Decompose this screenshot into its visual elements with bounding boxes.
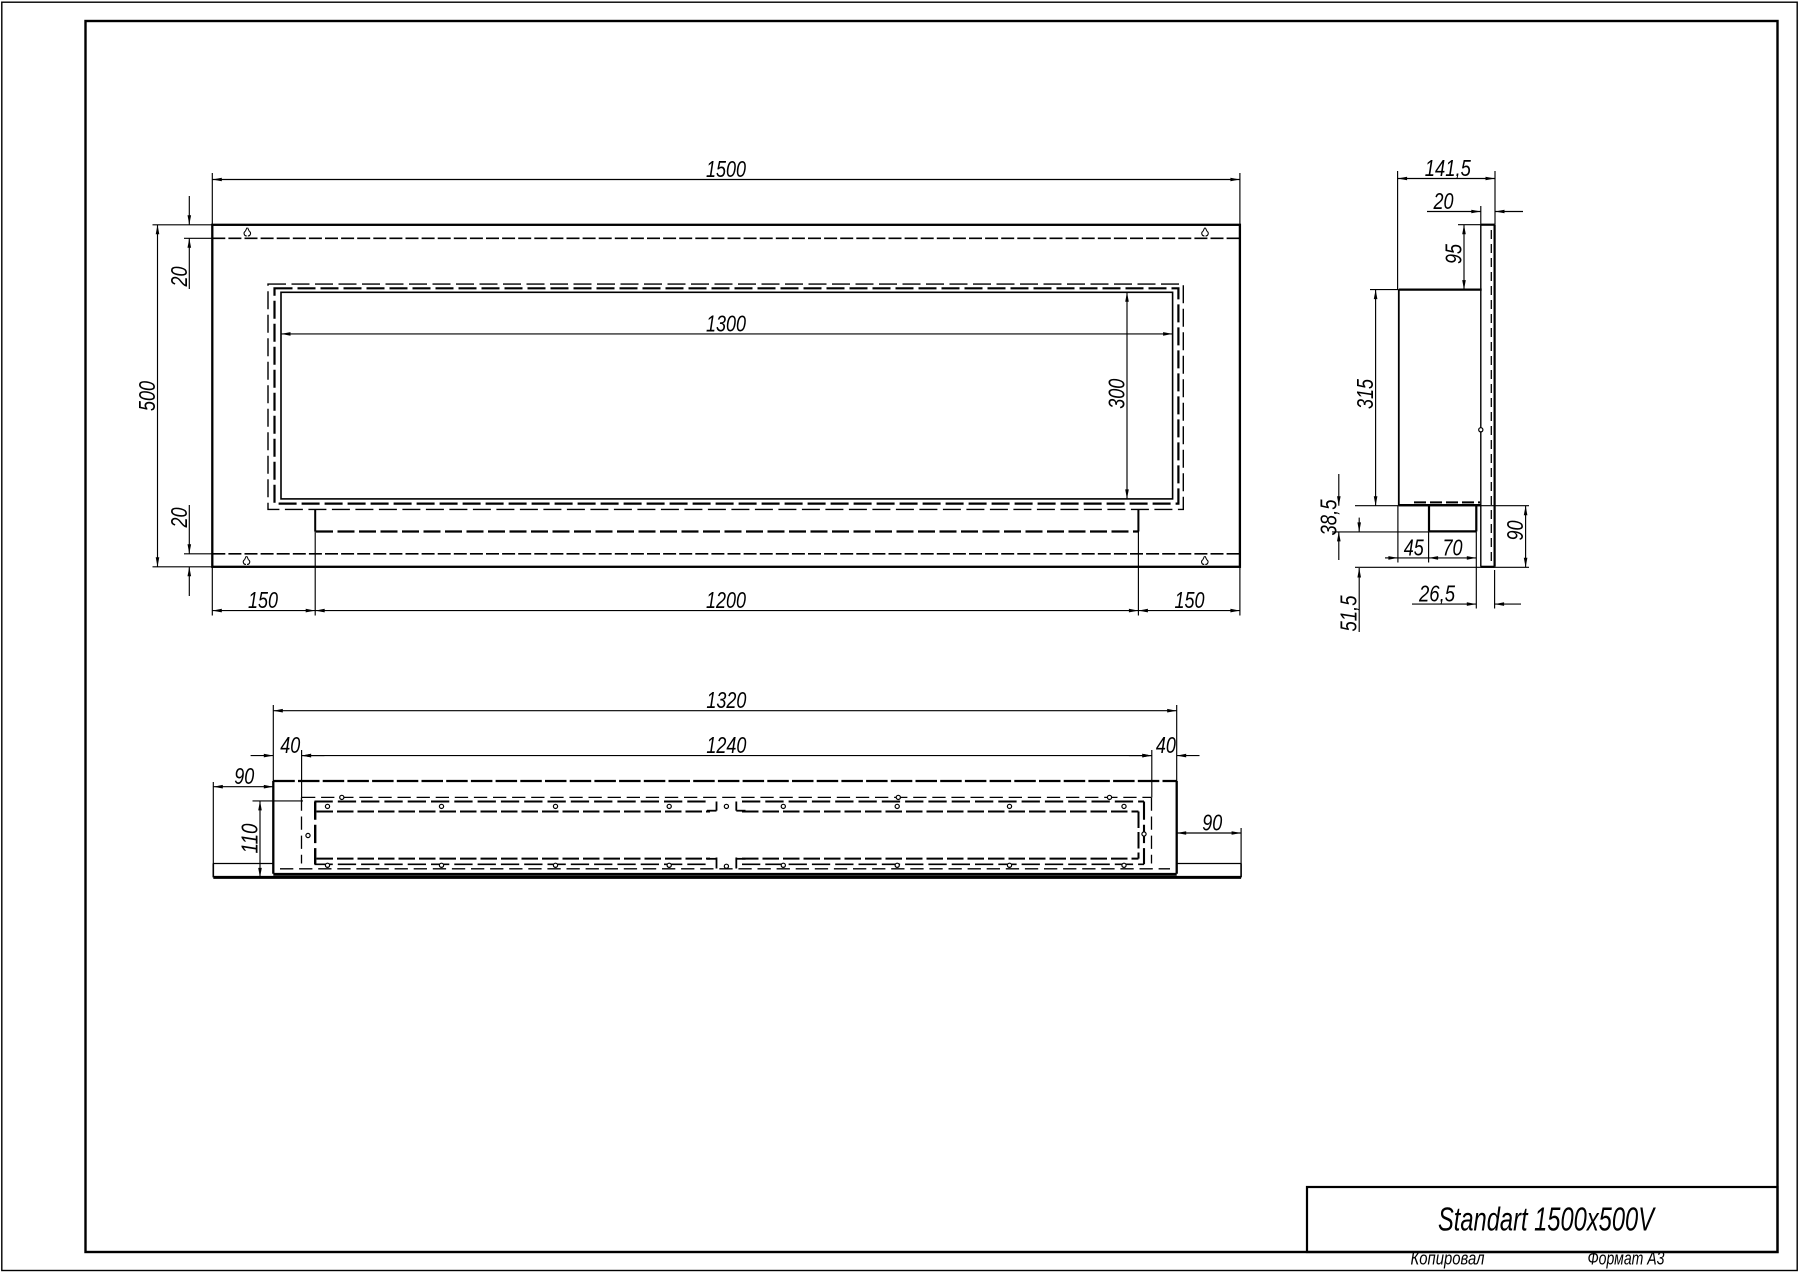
svg-text:90: 90 (234, 763, 254, 789)
svg-text:Формат А3: Формат А3 (1588, 1248, 1666, 1269)
svg-text:40: 40 (1156, 732, 1176, 758)
svg-text:1300: 1300 (706, 310, 746, 336)
svg-text:1500: 1500 (706, 156, 746, 182)
svg-text:20: 20 (1433, 188, 1454, 214)
svg-text:141,5: 141,5 (1425, 155, 1472, 181)
svg-text:500: 500 (134, 381, 160, 411)
svg-text:38,5: 38,5 (1315, 499, 1341, 536)
svg-text:51,5: 51,5 (1336, 595, 1362, 632)
svg-text:150: 150 (1175, 587, 1205, 613)
svg-text:1200: 1200 (706, 587, 746, 613)
svg-text:Копировал: Копировал (1411, 1248, 1485, 1269)
svg-text:300: 300 (1104, 379, 1130, 409)
svg-text:45: 45 (1404, 534, 1425, 560)
svg-text:26,5: 26,5 (1418, 581, 1456, 607)
svg-text:150: 150 (248, 587, 278, 613)
svg-text:1320: 1320 (706, 687, 746, 713)
svg-text:110: 110 (237, 824, 263, 854)
svg-text:Standart 1500x500V: Standart 1500x500V (1438, 1201, 1656, 1238)
svg-text:20: 20 (166, 267, 192, 288)
svg-text:95: 95 (1441, 243, 1467, 264)
svg-text:315: 315 (1352, 378, 1378, 409)
svg-text:70: 70 (1443, 534, 1463, 560)
svg-text:90: 90 (1502, 521, 1528, 541)
svg-text:1240: 1240 (706, 732, 746, 758)
svg-text:40: 40 (280, 732, 300, 758)
svg-text:20: 20 (166, 508, 192, 529)
svg-text:90: 90 (1202, 809, 1222, 835)
